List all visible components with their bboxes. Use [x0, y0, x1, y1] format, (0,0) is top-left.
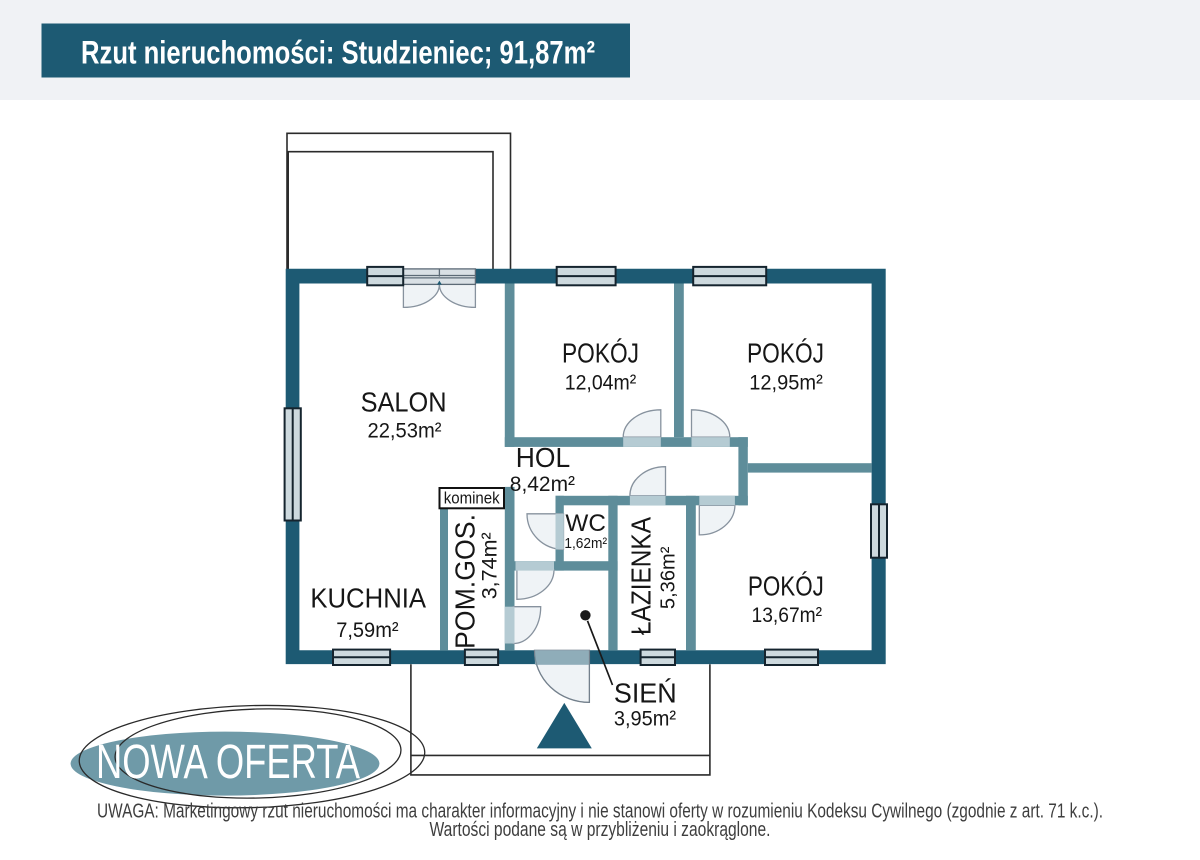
svg-text:POKÓJ: POKÓJ — [562, 338, 639, 369]
svg-text:8,42m²: 8,42m² — [510, 473, 575, 496]
svg-text:7,59m²: 7,59m² — [336, 619, 398, 642]
svg-text:3,95m²: 3,95m² — [614, 707, 676, 730]
svg-text:POKÓJ: POKÓJ — [747, 338, 824, 369]
svg-text:KUCHNIA: KUCHNIA — [310, 583, 426, 614]
svg-text:NOWA OFERTA: NOWA OFERTA — [96, 736, 360, 789]
svg-text:ŁAZIENKA: ŁAZIENKA — [626, 517, 657, 635]
svg-text:Wartości podane są w przybliże: Wartości podane są w przybliżeniu i zaok… — [430, 819, 771, 841]
svg-text:POM.GOS.: POM.GOS. — [449, 514, 480, 649]
svg-text:12,04m²: 12,04m² — [565, 372, 637, 395]
svg-text:WC: WC — [565, 510, 606, 537]
svg-text:kominek: kominek — [444, 489, 500, 508]
svg-text:22,53m²: 22,53m² — [368, 419, 442, 442]
svg-text:12,95m²: 12,95m² — [749, 372, 823, 395]
svg-text:HOL: HOL — [516, 442, 570, 473]
svg-text:SIEŃ: SIEŃ — [614, 677, 677, 708]
svg-text:POKÓJ: POKÓJ — [748, 570, 824, 601]
svg-text:5,36m²: 5,36m² — [657, 546, 679, 609]
svg-text:1,62m²: 1,62m² — [564, 535, 607, 552]
svg-text:SALON: SALON — [361, 386, 447, 417]
svg-text:3,74m²: 3,74m² — [479, 532, 502, 599]
svg-text:Rzut nieruchomości: Studzienie: Rzut nieruchomości: Studzieniec; 91,87m² — [81, 35, 595, 71]
svg-text:13,67m²: 13,67m² — [752, 604, 823, 627]
